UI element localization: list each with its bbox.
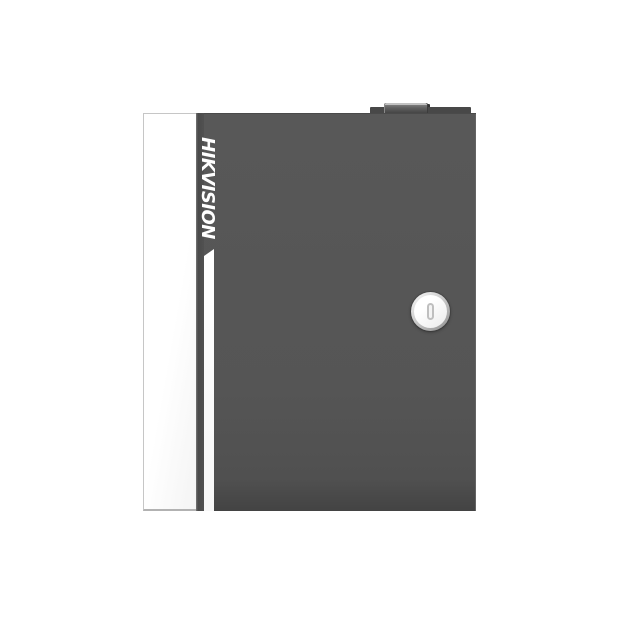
keyhole-slot-icon	[427, 303, 434, 320]
front-door: HIKVISION	[196, 113, 476, 511]
lock-face	[414, 295, 447, 328]
hinge-knob	[384, 103, 428, 113]
keyhole-lock-icon	[411, 292, 450, 331]
product-photo: HIKVISION	[0, 0, 620, 620]
accent-stripe	[204, 249, 214, 511]
brand-logo: HIKVISION	[197, 137, 218, 239]
side-panel	[143, 113, 197, 511]
